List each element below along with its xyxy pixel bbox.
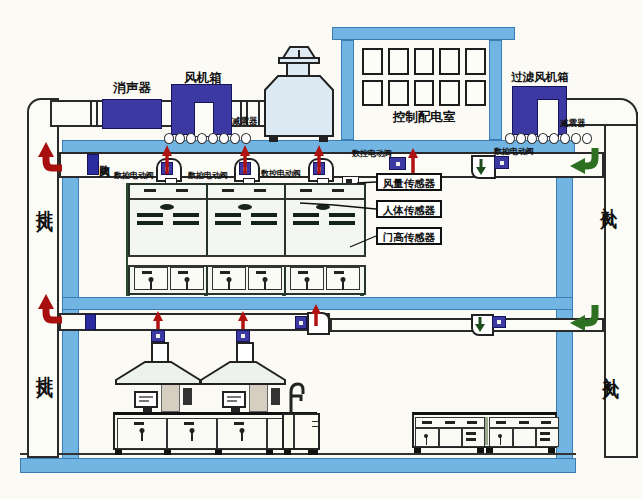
shock-absorber-right-label: 减震器 <box>560 118 586 130</box>
cnc-valve-2 <box>239 162 251 175</box>
filter-fan-box-label: 过滤风机箱 <box>505 70 575 85</box>
cnc-valve-1-label: 数控电动阀 <box>114 170 154 181</box>
fan-box-door <box>194 102 214 137</box>
faucet-icon <box>291 384 303 413</box>
cnc-valve-2-label: 数控电动阀 <box>188 170 228 181</box>
monitor-stand-1 <box>143 408 152 412</box>
control-room-label: 控制配电室 <box>372 109 476 126</box>
sink-cabinet <box>282 413 320 450</box>
computer-monitor-1 <box>134 391 158 408</box>
exhaust-upper-label: 排风 <box>33 196 56 210</box>
lab-ventilation-diagram: 消声器 风机箱 减震器 控制配电室 过滤风机箱 减震器 防火阀 数控电动阀 数控… <box>0 0 642 499</box>
shock-absorber-left-label: 减震器 <box>232 116 258 128</box>
control-room-panels <box>362 48 486 106</box>
cnc-valve-5 <box>494 156 509 169</box>
computer-tower-1 <box>161 383 180 412</box>
door-height-sensor-callout: 门高传感器 <box>376 227 442 245</box>
canopy-hoods <box>116 362 285 384</box>
ground-line <box>20 453 576 455</box>
computer-panel-2 <box>271 388 280 405</box>
silencer-label: 消声器 <box>102 80 162 97</box>
canopy-valve-1 <box>151 330 165 342</box>
lab-bench-right <box>412 412 557 448</box>
control-room-post-right <box>489 40 502 140</box>
cnc-valve-1 <box>161 162 173 175</box>
supply-lower-label: 补风 <box>599 363 622 377</box>
filter-fan-box-shock-absorbers <box>505 133 592 144</box>
fan-box-shock-absorbers <box>164 133 251 144</box>
cnc-valve-floor2 <box>492 316 506 328</box>
branch-valve-floor2 <box>295 316 307 329</box>
mid-floor-slab <box>62 297 573 310</box>
supply-upper-label: 补风 <box>597 193 620 207</box>
human-sensor-callout: 人体传感器 <box>376 200 442 218</box>
cnc-valve-3-label: 数控电动阀 <box>261 168 301 179</box>
cnc-valve-4-label: 数控电动阀 <box>352 148 392 159</box>
canopy-valve-2 <box>236 330 250 342</box>
computer-tower-2 <box>249 383 268 412</box>
supply-drop-elbow-floor2 <box>471 314 494 336</box>
branch-elbow-floor2 <box>307 312 330 335</box>
fume-hood-2 <box>206 183 288 295</box>
silencer-box <box>102 99 162 129</box>
exhaust-lower-label: 排风 <box>33 362 56 376</box>
canopy-stem-2 <box>236 342 254 367</box>
floor2-exhaust-duct <box>59 313 330 331</box>
fire-damper-floor2 <box>85 314 96 330</box>
computer-monitor-2 <box>222 391 246 408</box>
airflow-sensor-callout: 风量传感器 <box>376 173 442 191</box>
fan-box-label: 风机箱 <box>177 70 229 87</box>
control-room-post-left <box>341 40 354 140</box>
fan-box <box>171 84 232 135</box>
floor2-supply-duct <box>330 318 604 332</box>
supply-drop-elbow <box>471 155 496 179</box>
exhaust-riser-duct <box>27 98 59 458</box>
canopy-stem-1 <box>151 342 169 367</box>
supply-riser-duct <box>604 112 638 458</box>
filter-fan-box-door <box>537 99 559 137</box>
fire-damper-label: 防火阀 <box>98 156 112 159</box>
ground-slab <box>20 458 576 473</box>
computer-panel-1 <box>183 388 192 405</box>
control-room-beam <box>332 27 515 40</box>
cnc-valve-5-label: 数控电动阀 <box>494 146 534 157</box>
fume-hood-3 <box>284 183 366 295</box>
monitor-stand-2 <box>231 408 240 412</box>
cnc-valve-3 <box>313 162 325 175</box>
fume-hood-1 <box>128 183 210 295</box>
filter-fan-box <box>512 86 567 135</box>
